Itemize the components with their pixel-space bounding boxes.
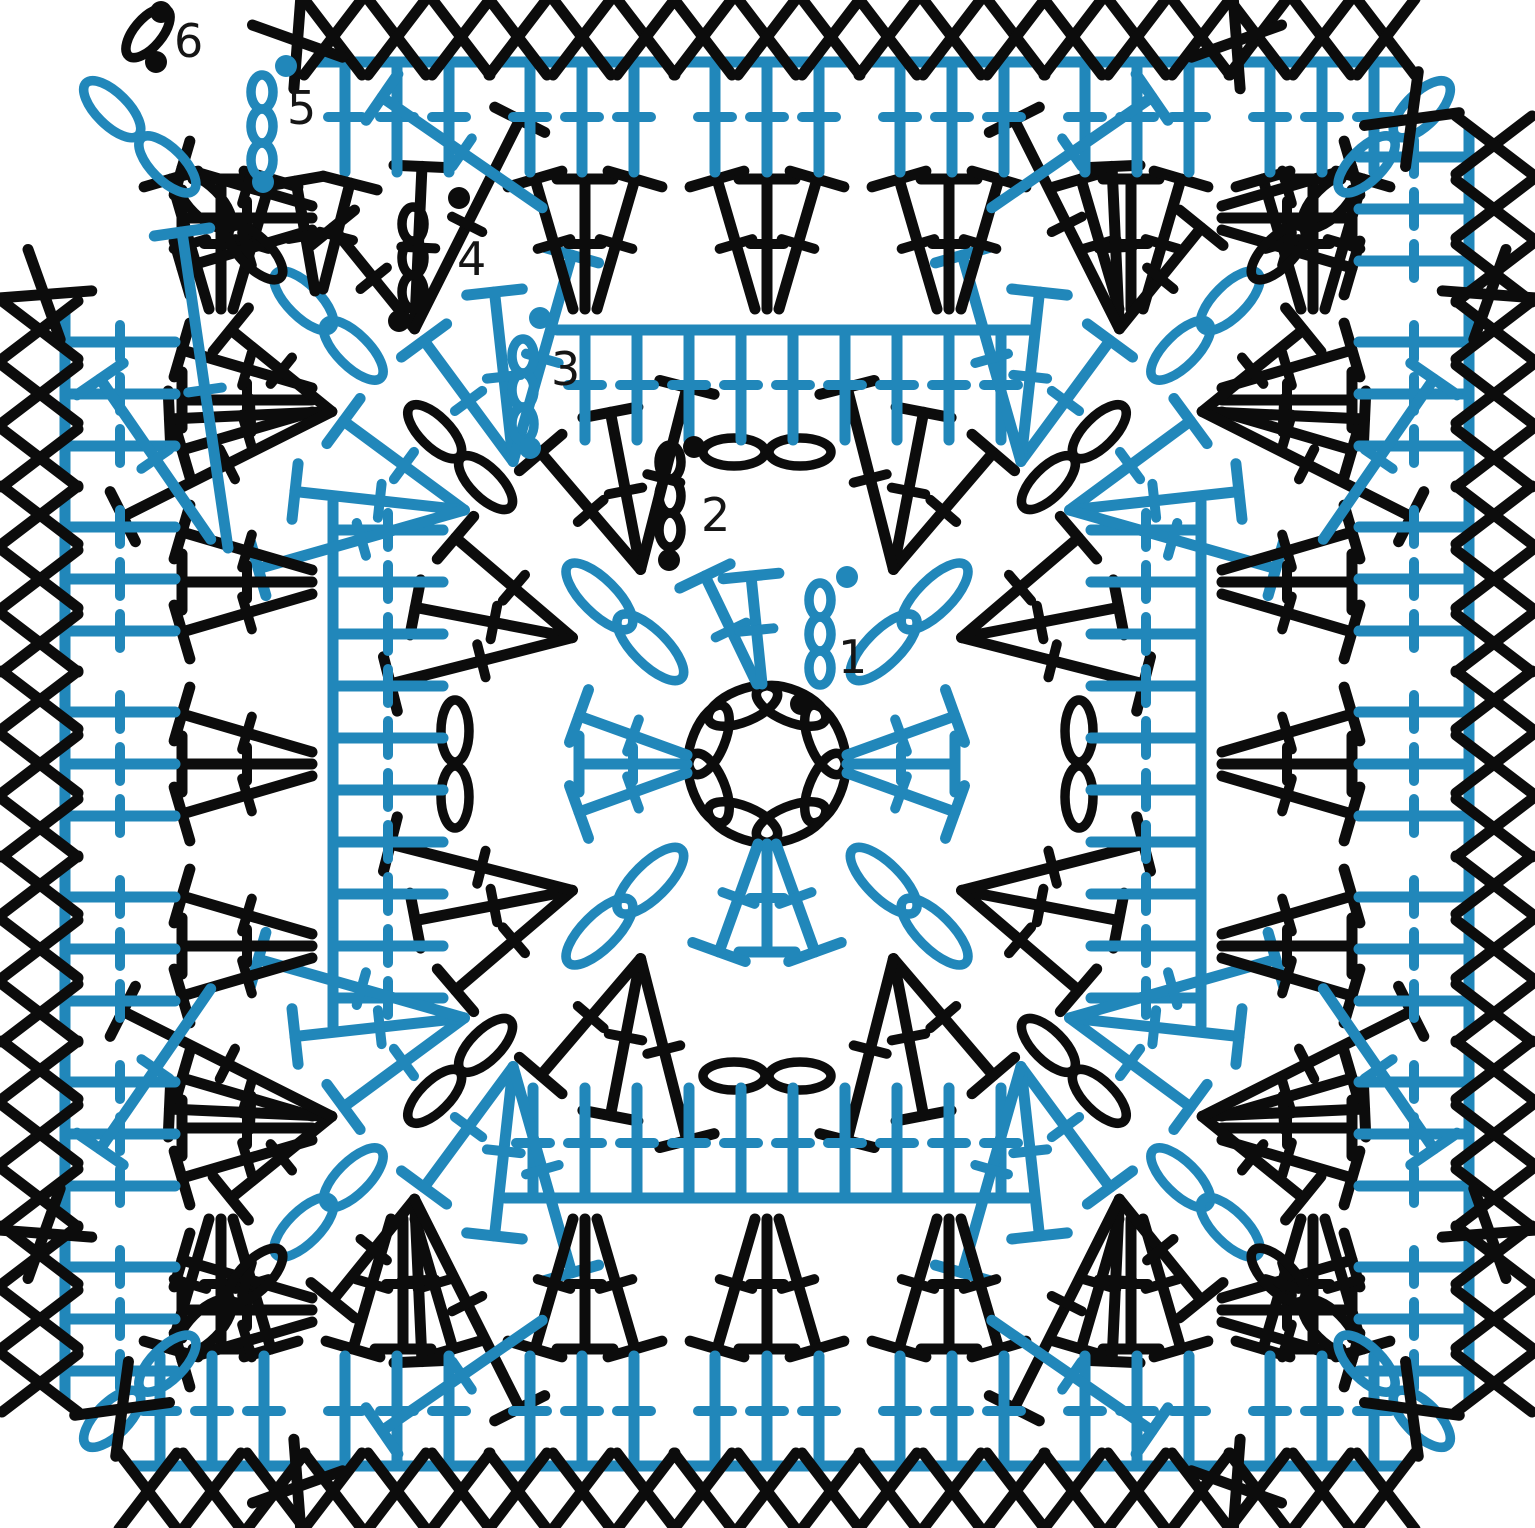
round-4 (110, 107, 1424, 1421)
round-label-6: 6 (174, 14, 203, 68)
round-label-2: 2 (701, 488, 730, 542)
round-label-3: 3 (551, 342, 580, 396)
round-3 (251, 248, 1284, 1281)
round-label-5: 5 (287, 81, 316, 135)
round-label-4: 4 (457, 232, 486, 286)
crochet-chart-svg: 123456 (0, 0, 1535, 1528)
crochet-chart-page: 123456 (0, 0, 1535, 1528)
round-1 (556, 553, 977, 974)
round-2 (384, 381, 1151, 1148)
round-label-1: 1 (838, 630, 867, 684)
